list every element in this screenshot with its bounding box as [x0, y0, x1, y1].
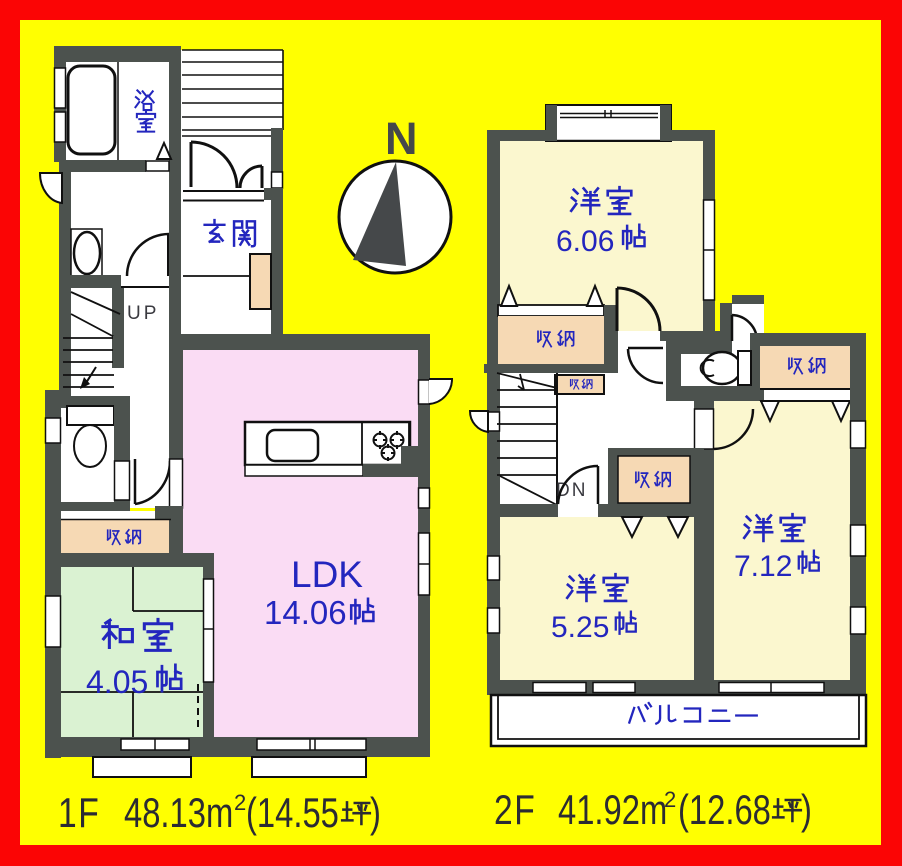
svg-text:1F: 1F	[58, 791, 100, 837]
svg-text:7.12: 7.12	[734, 550, 792, 583]
svg-text:14.06: 14.06	[264, 594, 347, 631]
svg-text:N: N	[385, 113, 418, 164]
svg-text:LDK: LDK	[291, 554, 363, 595]
svg-text:(14.55: (14.55	[246, 789, 339, 836]
svg-text:5.25: 5.25	[551, 611, 609, 644]
svg-text:2F: 2F	[494, 788, 536, 834]
svg-text:): )	[801, 786, 812, 833]
svg-text:2: 2	[664, 787, 676, 812]
svg-text:4.05: 4.05	[86, 664, 148, 700]
svg-text:(12.68: (12.68	[678, 786, 771, 833]
svg-text:48.13m: 48.13m	[124, 789, 233, 836]
svg-text:41.92m: 41.92m	[558, 786, 667, 833]
svg-text:2: 2	[234, 790, 246, 815]
svg-text:6.06: 6.06	[556, 225, 614, 258]
svg-text:): )	[370, 789, 381, 836]
svg-text:UP: UP	[127, 303, 159, 324]
